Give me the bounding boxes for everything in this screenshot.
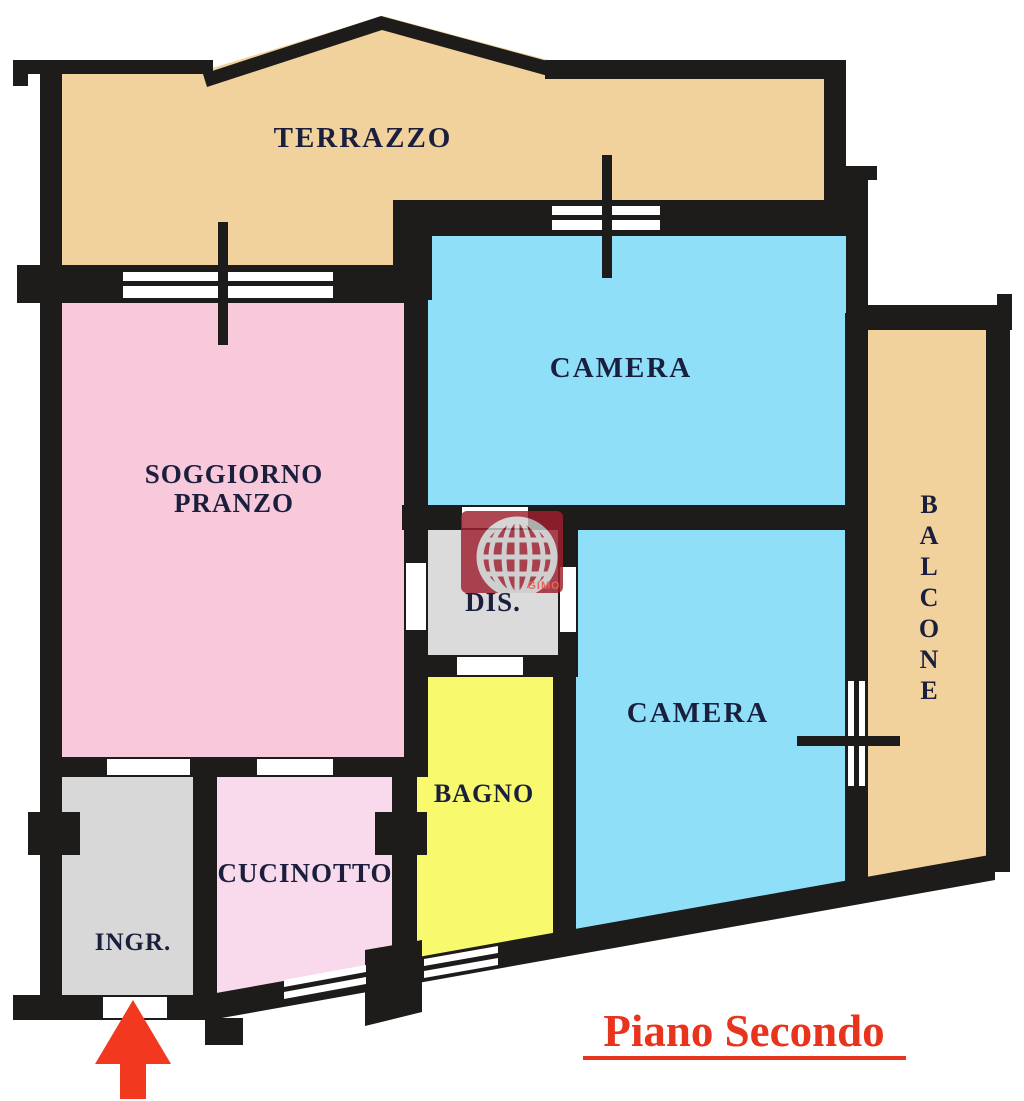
balcone-letter: E [920, 676, 937, 705]
room-camera-2 [570, 520, 850, 946]
label-bagno: BAGNO [434, 779, 534, 808]
label-cucinotto: CUCINOTTO [217, 858, 392, 888]
door-soggiorno-cucinotto [257, 759, 333, 775]
wall-terrazzo-right [824, 60, 846, 216]
window-cross-terrazzo [218, 222, 228, 345]
floor-plan-svg: GIMO TERRAZZO CAMERA CAMERA SOGGIORNO PR… [0, 0, 1024, 1101]
label-ingresso: INGR. [95, 929, 172, 956]
wall-pillar-left [28, 812, 80, 855]
door-dis-bagno [457, 657, 523, 675]
wall-camera-balcone [845, 313, 868, 897]
window-cross-balcone [797, 736, 900, 746]
wall-terrazzo-top [545, 60, 846, 79]
balcone-letter: O [919, 614, 939, 643]
wall-left [40, 72, 62, 1020]
room-soggiorno-pranzo [60, 294, 405, 760]
watermark-text: GIMO [527, 580, 560, 592]
wall-foot-stub [205, 1018, 243, 1045]
balcone-letter: L [920, 552, 937, 581]
wall-top-bar [13, 60, 213, 74]
floor-title: Piano Secondo [583, 1006, 906, 1060]
window-cross-camera [602, 155, 612, 278]
label-terrazzo: TERRAZZO [274, 122, 453, 154]
label-camera-2: CAMERA [627, 697, 770, 729]
room-ingresso [60, 775, 195, 1000]
label-soggiorno-line2: PRANZO [174, 488, 294, 518]
balcone-letter: B [920, 490, 937, 519]
wall-joint-top [393, 200, 432, 300]
wall-pillar-right [375, 812, 427, 855]
balcone-letter: A [920, 521, 939, 550]
wall-soggiorno-bottom [40, 757, 417, 777]
balcone-letter: N [920, 645, 939, 674]
wall-step-vertical [846, 170, 868, 320]
wall-ingresso-cucinotto [193, 757, 217, 1010]
floor-title-text: Piano Secondo [603, 1006, 884, 1056]
room-bagno [417, 670, 556, 973]
window-sill-balcone [854, 681, 859, 786]
label-soggiorno-line1: SOGGIORNO [145, 459, 324, 489]
wall-top-bar-stub [13, 74, 28, 86]
label-camera-1: CAMERA [550, 352, 693, 384]
wall-diagonal-joint [365, 940, 422, 1026]
agency-watermark-logo: GIMO [461, 511, 563, 594]
wall-balcone-right [986, 305, 1010, 872]
floor-plan-page: GIMO TERRAZZO CAMERA CAMERA SOGGIORNO PR… [0, 0, 1024, 1101]
wall-bagno-right [553, 655, 576, 950]
label-disimpegno: DIS. [465, 587, 521, 617]
door-soggiorno-dis [406, 563, 426, 630]
balcone-letter: C [920, 583, 939, 612]
door-soggiorno-ingresso [107, 759, 190, 775]
label-balcone: B A L C O N E [919, 490, 939, 705]
floor-title-underline [583, 1056, 906, 1060]
